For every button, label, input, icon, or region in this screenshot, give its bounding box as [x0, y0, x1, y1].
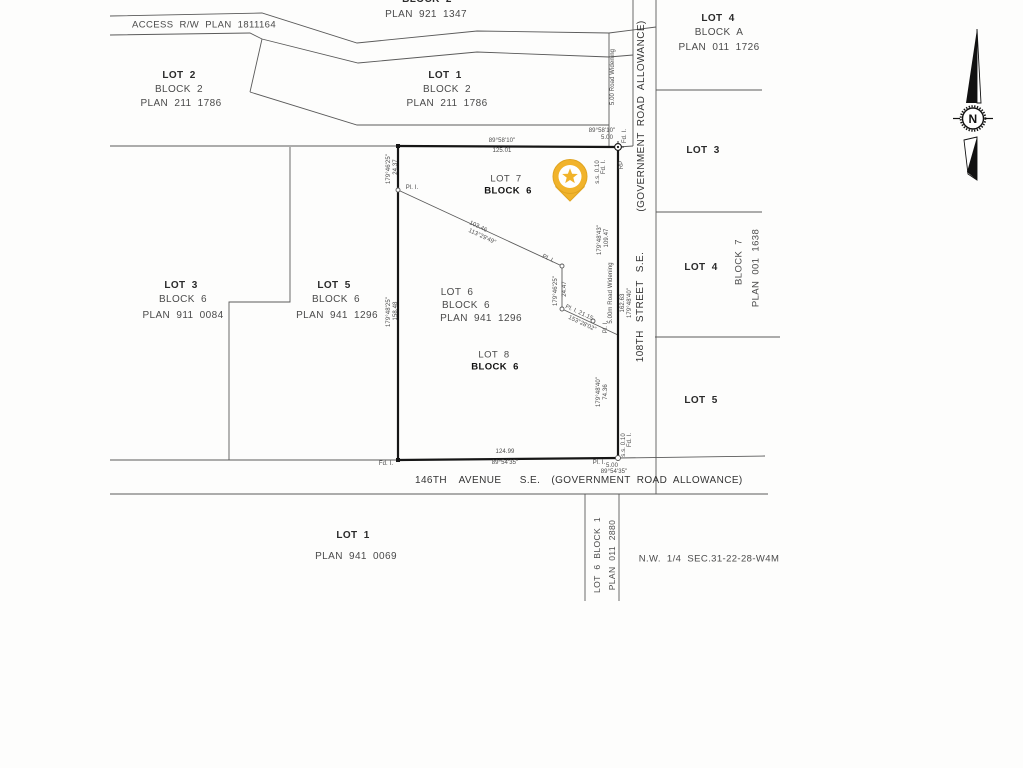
bl-fdi: Fd. I. — [379, 461, 393, 467]
east-distance-upper: 109.47 — [604, 229, 610, 248]
west-distance-upper: 24.37 — [393, 159, 399, 175]
br-ss: s.s. 0.10 — [621, 433, 627, 457]
west-bearing-upper: 179°46'25" — [386, 154, 392, 184]
north-distance: 125.01 — [493, 148, 512, 154]
lot1b-title: LOT 1 — [336, 531, 369, 541]
lot3-plan: PLAN 911 0084 — [142, 311, 223, 321]
south-bearing: 89°54'35" — [492, 460, 519, 466]
block2-top-label: BLOCK 2 — [402, 0, 452, 5]
east-bearing-lower: 179°48'40" — [596, 377, 602, 407]
lot6-title: LOT 6 — [441, 288, 474, 298]
tr-ss: s.s. 0.10 — [595, 160, 601, 184]
tr-bearing: 89°58'10" — [589, 128, 616, 134]
lot1-title: LOT 1 — [428, 71, 461, 81]
strip-lot-label: LOT 6 BLOCK 1 — [593, 517, 602, 593]
lot2-block: BLOCK 2 — [155, 85, 203, 95]
lot8-block: BLOCK 6 — [471, 362, 519, 372]
lot2-plan: PLAN 211 1786 — [140, 99, 221, 109]
br-distance: 5.00 — [606, 463, 618, 469]
strip-plan-label: PLAN 011 2880 — [608, 520, 617, 591]
lot4a-block: BLOCK A — [695, 28, 744, 38]
br-pli: Pl. I. — [593, 460, 606, 466]
label-layer: BLOCK 2PLAN 921 1347ACCESS R/W PLAN 1811… — [0, 0, 1023, 768]
east-bearing-upper: 179°48'43" — [597, 225, 603, 255]
lot1-plan: PLAN 211 1786 — [406, 99, 487, 109]
street-distance: 162.63 — [620, 294, 626, 313]
lot2-title: LOT 2 — [162, 71, 195, 81]
lot7-title: LOT 7 — [490, 174, 521, 184]
road-widening-mid: 5.00m Road Widening — [608, 262, 614, 323]
ave-146th: 146TH — [415, 476, 447, 486]
plan-921-1347-label: PLAN 921 1347 — [385, 10, 467, 20]
jog-bearing: 179°46'25" — [553, 276, 559, 306]
lot6-plan: PLAN 941 1296 — [440, 314, 522, 324]
ave-se: S.E. — [520, 476, 541, 486]
lot1-block: BLOCK 2 — [423, 85, 471, 95]
plan-001-1638-label: PLAN 001 1638 — [751, 229, 761, 307]
lot3-title: LOT 3 — [164, 281, 197, 291]
lot5-plan: PLAN 941 1296 — [296, 311, 378, 321]
street-bearing: 179°48'40" — [627, 288, 633, 318]
lot8-title: LOT 8 — [478, 350, 509, 360]
road-widening-top: 5.00 Road Widening — [610, 49, 616, 105]
lot6-block: BLOCK 6 — [442, 301, 490, 311]
lot1b-plan: PLAN 941 0069 — [315, 552, 397, 562]
block7-label: BLOCK 7 — [734, 239, 744, 285]
lot3-right-title: LOT 3 — [686, 146, 719, 156]
lot4-right-title: LOT 4 — [684, 263, 717, 273]
br-fdi: Fd. I. — [627, 433, 633, 447]
lot5-title: LOT 5 — [317, 281, 350, 291]
south-distance: 124.99 — [496, 449, 515, 455]
tr-distance: 5.00 — [601, 135, 613, 141]
west-bearing-lower: 179°48'25" — [386, 297, 392, 327]
tr-fdi-right: Fd. I. — [622, 129, 628, 143]
jog-distance: 24.47 — [562, 281, 568, 297]
tr-rp: RP — [619, 161, 625, 170]
survey-plat: BLOCK 2PLAN 921 1347ACCESS R/W PLAN 1811… — [0, 0, 1023, 768]
access-rw-label: ACCESS R/W PLAN 1811164 — [132, 20, 276, 30]
lot7-block: BLOCK 6 — [484, 186, 532, 196]
quarter-section-label: N.W. 1/4 SEC.31-22-28-W4M — [639, 554, 780, 564]
lot4a-title: LOT 4 — [701, 14, 734, 24]
lot3-block: BLOCK 6 — [159, 295, 207, 305]
compass-n-label: N — [968, 113, 977, 125]
ave-avenue: AVENUE — [459, 476, 502, 486]
lot5-block: BLOCK 6 — [312, 295, 360, 305]
pli-1: Pl. I. — [406, 185, 419, 191]
north-bearing: 89°58'10" — [489, 138, 516, 144]
lot5-right-title: LOT 5 — [684, 396, 717, 406]
gov-allowance-right: (GOVERNMENT ROAD ALLOWANCE) — [637, 20, 647, 211]
street-108th: 108TH STREET S.E. — [636, 252, 646, 363]
pli-2: Pl. I. — [541, 254, 555, 265]
tr-fdi-left: Fd. I. — [601, 160, 607, 174]
east-distance-lower: 74.36 — [603, 384, 609, 400]
west-distance-lower: 158.48 — [393, 302, 399, 321]
lot4a-plan: PLAN 011 1726 — [678, 43, 759, 53]
ave-gov-allowance: (GOVERNMENT ROAD ALLOWANCE) — [551, 476, 742, 486]
